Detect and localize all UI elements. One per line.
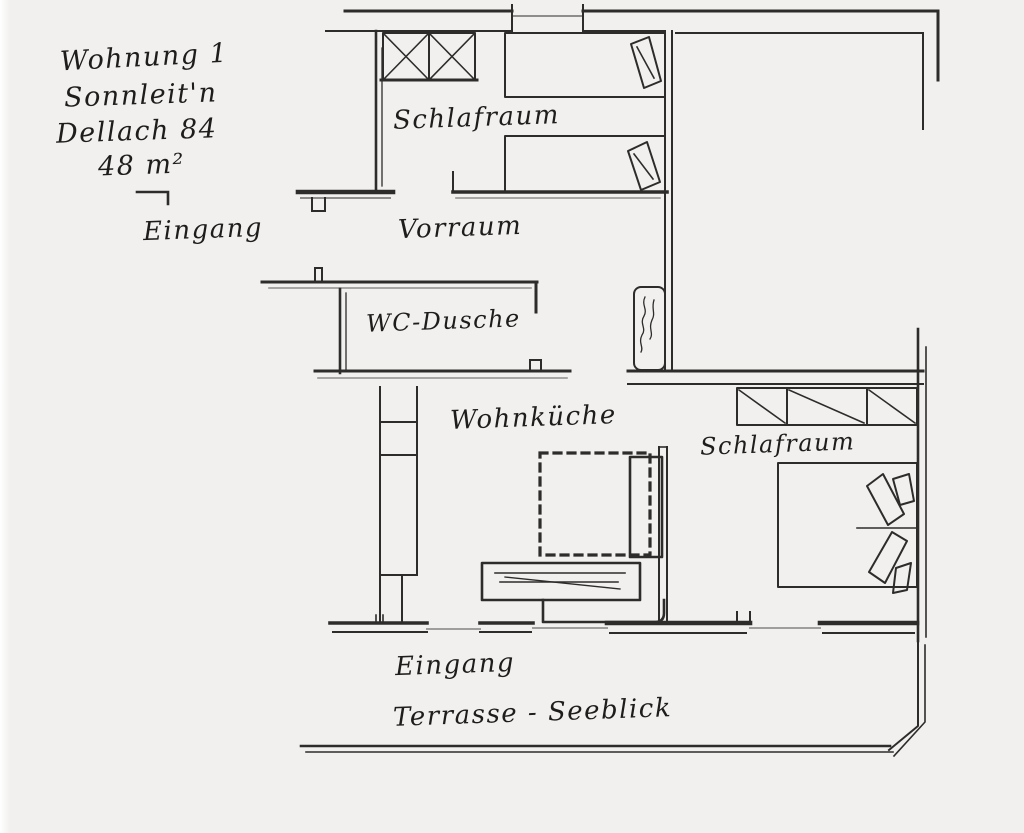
label-bedroom-right: Schlafraum bbox=[700, 427, 856, 460]
right-bedroom-furniture bbox=[737, 388, 917, 593]
kitchen-counter bbox=[380, 387, 417, 622]
label-kitchen: Wohnküche bbox=[450, 400, 618, 436]
floor-plan-scan: Wohnung 1 Sonnleit'n Dellach 84 48 m² Ei… bbox=[0, 0, 1024, 833]
bathroom-walls bbox=[262, 268, 923, 384]
chimney bbox=[634, 287, 665, 370]
label-entrance-top: Eingang bbox=[143, 213, 264, 247]
label-bedroom-top: Schlafraum bbox=[393, 100, 561, 136]
title-area: 48 m² bbox=[97, 148, 185, 182]
title-house-name: Sonnleit'n bbox=[64, 77, 218, 113]
label-hallway: Vorraum bbox=[398, 211, 523, 245]
title-address: Dellach 84 bbox=[56, 113, 218, 150]
kitchen-furniture bbox=[482, 453, 664, 622]
label-bathroom: WC-Dusche bbox=[366, 304, 522, 337]
label-entrance-bottom: Eingang bbox=[395, 648, 516, 682]
